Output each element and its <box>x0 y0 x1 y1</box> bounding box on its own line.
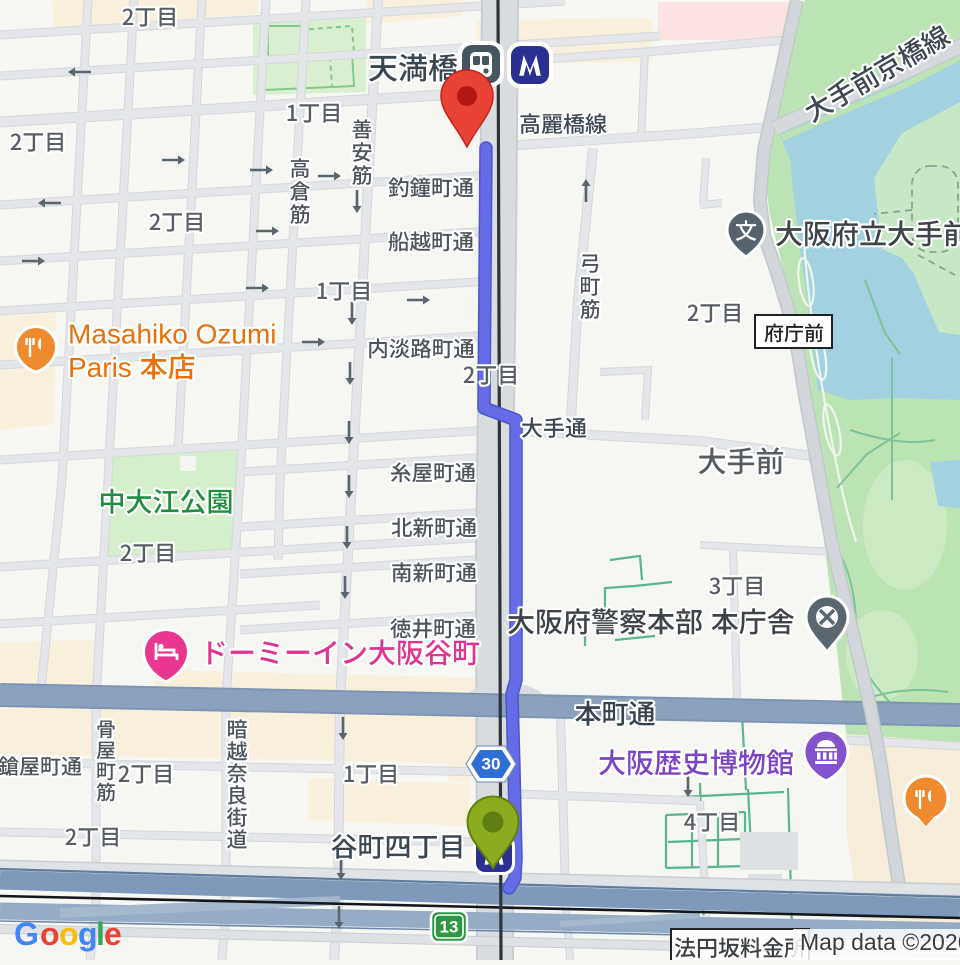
svg-text:大阪歴史博物館: 大阪歴史博物館 <box>598 742 794 782</box>
svg-text:G: G <box>14 916 39 952</box>
svg-text:2丁目: 2丁目 <box>118 757 175 789</box>
svg-text:大手前: 大手前 <box>697 439 784 481</box>
svg-text:2丁目: 2丁目 <box>149 205 206 237</box>
svg-text:内淡路町通: 内淡路町通 <box>367 333 475 364</box>
svg-text:大手通: 大手通 <box>521 411 587 443</box>
svg-text:1丁目: 1丁目 <box>286 96 343 128</box>
svg-text:2丁目: 2丁目 <box>10 125 67 157</box>
svg-text:30: 30 <box>482 755 501 774</box>
svg-text:高麗橋線: 高麗橋線 <box>519 107 607 139</box>
svg-text:南新町通: 南新町通 <box>391 557 477 588</box>
svg-text:e: e <box>104 916 122 952</box>
svg-text:2丁目: 2丁目 <box>463 358 520 390</box>
svg-text:府庁前: 府庁前 <box>764 318 824 347</box>
svg-text:g: g <box>78 916 98 952</box>
svg-text:1丁目: 1丁目 <box>343 757 400 789</box>
svg-text:谷町四丁目: 谷町四丁目 <box>331 826 466 865</box>
svg-text:船越町通: 船越町通 <box>388 226 474 257</box>
svg-text:筋: 筋 <box>352 160 373 190</box>
svg-text:筋: 筋 <box>580 294 601 324</box>
svg-text:糸屋町通: 糸屋町通 <box>390 457 476 488</box>
svg-text:2丁目: 2丁目 <box>687 296 744 328</box>
svg-text:13: 13 <box>440 918 459 937</box>
svg-text:文: 文 <box>735 214 757 246</box>
svg-text:釣鐘町通: 釣鐘町通 <box>388 172 474 203</box>
svg-text:1丁目: 1丁目 <box>316 274 373 306</box>
svg-text:Paris 本店: Paris 本店 <box>68 346 196 386</box>
svg-text:本町通: 本町通 <box>575 693 656 732</box>
svg-text:2丁目: 2丁目 <box>65 820 122 852</box>
svg-text:中大江公園: 中大江公園 <box>99 481 234 520</box>
svg-text:大阪府立大手前: 大阪府立大手前 <box>775 213 960 253</box>
svg-text:大阪府警察本部 本庁舎: 大阪府警察本部 本庁舎 <box>507 601 795 641</box>
svg-text:天満橋: 天満橋 <box>368 44 458 88</box>
svg-text:筋: 筋 <box>96 777 116 806</box>
svg-text:道: 道 <box>227 824 248 854</box>
svg-text:2丁目: 2丁目 <box>120 536 177 568</box>
svg-text:ドーミーイン大阪谷町: ドーミーイン大阪谷町 <box>200 632 480 672</box>
svg-text:3丁目: 3丁目 <box>709 569 766 601</box>
svg-text:o: o <box>59 916 79 952</box>
svg-text:o: o <box>40 916 60 952</box>
svg-text:筋: 筋 <box>290 199 311 229</box>
svg-text:鎗屋町通: 鎗屋町通 <box>0 751 82 781</box>
svg-text:法円坂料金所: 法円坂料金所 <box>674 931 806 960</box>
svg-text:2丁目: 2丁目 <box>122 0 179 32</box>
svg-text:Masahiko Ozumi: Masahiko Ozumi <box>68 319 277 350</box>
svg-text:4丁目: 4丁目 <box>684 805 741 837</box>
svg-text:Map data ©2026: Map data ©2026 <box>800 929 960 955</box>
svg-text:北新町通: 北新町通 <box>391 512 477 543</box>
